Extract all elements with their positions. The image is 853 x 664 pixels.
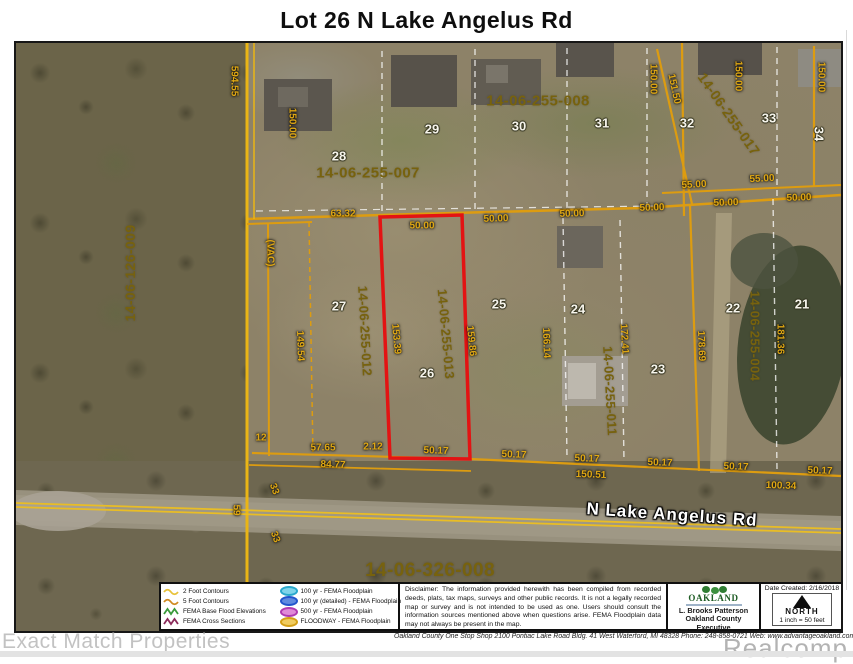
legend-item-label: 500 yr - FEMA Floodplain: [301, 608, 373, 615]
bottom-strip: [0, 651, 853, 657]
dimension-label: 50.00: [409, 221, 434, 232]
dimension-label: 12: [255, 433, 266, 444]
legend-item-label: FLOODWAY - FEMA Floodplain: [301, 618, 391, 625]
north-label: NORTH: [773, 608, 831, 617]
dimension-label: 50.17: [574, 453, 599, 465]
executive-section: OAKLAND L. Brooks Patterson Oakland Coun…: [666, 584, 759, 629]
executive-title: Oakland County Executive: [668, 615, 759, 632]
dimension-label: 150.51: [576, 469, 607, 481]
parcel-id-label: 14-06-255-007: [316, 165, 420, 182]
dimension-label: 55.00: [681, 179, 707, 191]
oakland-logo-icon: [697, 585, 731, 594]
legend-item: 100 yr - FEMA Floodplain: [280, 586, 397, 596]
dimension-label: 50.17: [807, 465, 832, 477]
parcel-id-label: 14-06-126-009: [122, 224, 138, 321]
dimension-label: 150.00: [648, 64, 659, 95]
dimension-label: 594.55: [229, 66, 240, 97]
dimension-label: 150.00: [733, 61, 744, 92]
dimension-label: 50.17: [647, 457, 672, 469]
dimension-label: 63.32: [330, 209, 355, 220]
legend-item: 2 Foot Contours: [163, 586, 280, 596]
map-labels: 594.55150.0063.3250.0050.0050.0050.0050.…: [16, 43, 841, 631]
dimension-label: 181.36: [775, 324, 786, 355]
dimension-label: 50.00: [639, 202, 664, 214]
parcel-id-label: 14-06-255-011: [600, 346, 620, 436]
dimension-label: 50.17: [723, 461, 748, 473]
dimension-label: 172.41: [617, 323, 630, 354]
legend-oval-icon: [280, 586, 298, 596]
parcel-id-label: 14-06-255-008: [486, 93, 590, 110]
legend-item: 5 Foot Contours: [163, 596, 280, 606]
disclaimer-text: Disclaimer: The information provided her…: [405, 586, 661, 630]
lot-number: 21: [795, 297, 809, 312]
lot-number: 22: [726, 301, 740, 316]
north-box: NORTH 1 inch = 50 feet: [772, 593, 832, 626]
dimension-label: 50.00: [786, 192, 811, 204]
date-created: Date Created: 2/16/2018: [761, 585, 843, 592]
legend-oval-icon: [280, 607, 298, 617]
lot-number: 30: [512, 119, 526, 134]
legend-item-label: 100 yr - FEMA Floodplain: [301, 588, 373, 595]
legend-item-label: 5 Foot Contours: [183, 598, 229, 605]
legend-item: 500 yr - FEMA Floodplain: [280, 607, 397, 617]
legend-item: FEMA Base Flood Elevations: [163, 607, 280, 617]
page-title: Lot 26 N Lake Angelus Rd: [0, 7, 853, 34]
legend-item: FEMA Cross Sections: [163, 617, 280, 627]
legend-symbols-section: 2 Foot Contours5 Foot ContoursFEMA Base …: [161, 584, 398, 629]
legend-oval-icon: [280, 617, 298, 627]
legend-item-label: FEMA Base Flood Elevations: [183, 608, 266, 615]
dimension-label: 150.00: [816, 62, 827, 93]
lot-number: 29: [425, 122, 439, 137]
dimension-label: 50.00: [559, 208, 584, 220]
legend-item-label: 2 Foot Contours: [183, 588, 229, 595]
legend-zigzag-icon: [163, 617, 181, 626]
dimension-label: 151.50: [665, 73, 682, 105]
parcel-id-label: 14-06-255-013: [435, 288, 458, 379]
road-label: N Lake Angelus Rd: [586, 499, 758, 531]
lot-number: 25: [492, 297, 506, 312]
page: { "title": "Lot 26 N Lake Angelus Rd", "…: [0, 0, 853, 657]
dimension-label: 33: [267, 482, 281, 496]
lot-number: 34: [812, 127, 827, 141]
legend-oval-icon: [280, 596, 298, 606]
legend-item: FLOODWAY - FEMA Floodplain: [280, 617, 397, 627]
dimension-label: 84.77: [320, 459, 345, 471]
dimension-label: 150.00: [287, 108, 298, 139]
lot-number: 23: [651, 362, 665, 377]
lot-number: 31: [595, 116, 609, 131]
legend: 2 Foot Contours5 Foot ContoursFEMA Base …: [159, 582, 843, 631]
legend-item-label: FEMA Cross Sections: [183, 618, 245, 625]
legend-item-label: 100 yr (detailed) - FEMA Floodplain: [301, 598, 402, 605]
legend-wave-icon: [163, 597, 181, 606]
legend-zigzag-icon: [163, 607, 181, 616]
scale-label: 1 inch = 50 feet: [773, 617, 831, 624]
dimension-label: (VAC): [265, 239, 276, 266]
legend-wave-icon: [163, 587, 181, 596]
dimension-label: 33: [268, 530, 282, 544]
parcel-id-label: 14-06-255-012: [355, 285, 375, 376]
dimension-label: 50.17: [501, 449, 526, 461]
lot-number: 32: [680, 116, 694, 131]
dimension-label: 55.00: [749, 173, 775, 185]
dimension-label: 50.00: [713, 197, 738, 209]
dimension-label: 178.69: [695, 331, 707, 362]
edge-line: [846, 30, 847, 590]
dimension-label: 50.00: [483, 213, 508, 225]
disclaimer-section: Disclaimer: The information provided her…: [398, 584, 666, 629]
lot-number: 26: [420, 366, 434, 381]
north-section: Date Created: 2/16/2018 NORTH 1 inch = 5…: [759, 584, 843, 629]
lot-number: 33: [762, 111, 776, 126]
parcel-id-label: 14-06-255-004: [748, 291, 763, 382]
lot-number: 28: [332, 149, 346, 164]
dimension-label: 149.54: [294, 331, 306, 362]
map-canvas: 594.55150.0063.3250.0050.0050.0050.0050.…: [14, 41, 843, 633]
legend-item: 100 yr (detailed) - FEMA Floodplain: [280, 596, 397, 606]
dimension-label: 153.39: [389, 323, 403, 354]
lot-number: 27: [332, 299, 346, 314]
dimension-label: 100.34: [766, 480, 797, 492]
dimension-label: 50.17: [423, 445, 448, 457]
watermark-realcomp: Realcomp: [723, 633, 848, 664]
dimension-label: 59: [231, 504, 242, 515]
lot-number: 24: [571, 302, 585, 317]
parcel-id-label: 14-06-255-017: [695, 70, 764, 159]
dimension-label: 159.86: [464, 325, 478, 357]
dimension-label: 57.65: [310, 443, 335, 454]
parcel-id-label: 14-06-326-008: [365, 560, 495, 582]
oakland-logo-text: OAKLAND: [668, 594, 759, 603]
dimension-label: 166.14: [540, 328, 552, 359]
dimension-label: 2.12: [363, 442, 382, 453]
